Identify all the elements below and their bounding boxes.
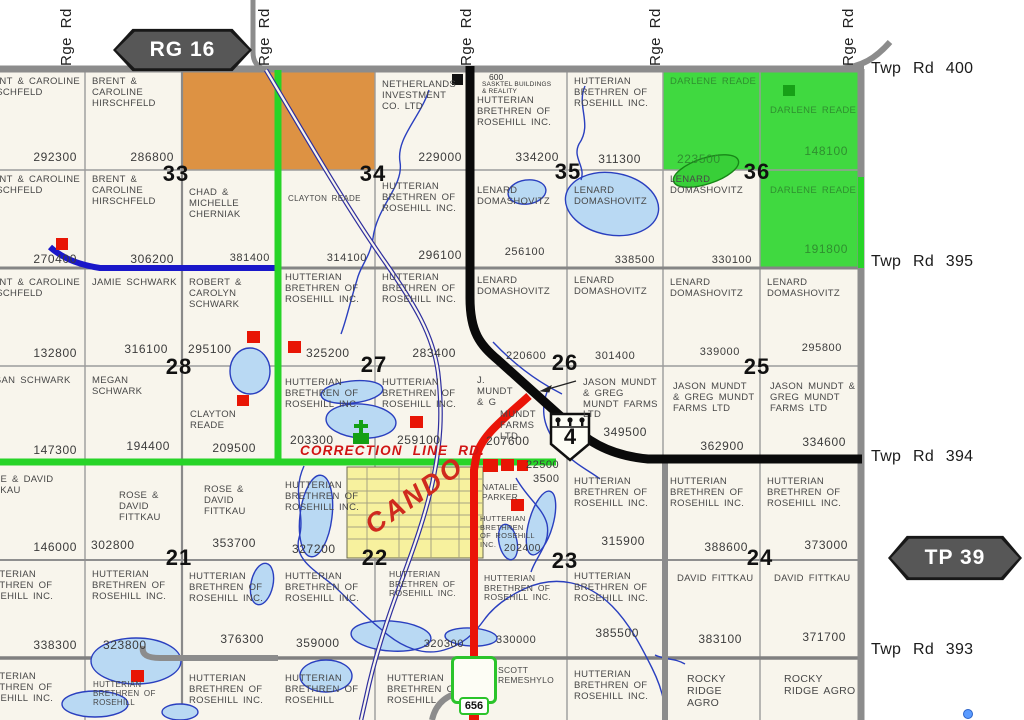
range-road-label: Rge Rd	[256, 2, 272, 66]
town-population-marker: 656	[451, 656, 497, 704]
highway-number: 4	[549, 424, 591, 450]
township-marker: TP 39	[888, 535, 1022, 581]
range-road-label: Rge Rd	[647, 2, 663, 66]
highway-4-shield: 4	[549, 408, 591, 462]
range-road-label: Rge Rd	[458, 2, 474, 66]
correction-line-road-label: CORRECTION LINE RD.	[300, 443, 570, 458]
town-name-label: CANDO	[359, 450, 470, 541]
township-marker-label: TP 39	[925, 546, 986, 570]
township-road-label: Twp Rd 400	[871, 60, 973, 78]
range-road-label: Rge Rd	[840, 2, 856, 66]
township-road-label: Twp Rd 394	[871, 448, 973, 466]
map-canvas[interactable]: BRENT & CAROLINE HIRSCHFELD292300BRENT &…	[0, 0, 1024, 720]
range-marker: RG 16	[113, 28, 252, 72]
township-road-label: Twp Rd 393	[871, 641, 973, 659]
population-value: 656	[459, 697, 489, 715]
township-road-label: Twp Rd 395	[871, 253, 973, 271]
range-road-label: Rge Rd	[58, 2, 74, 66]
range-marker-label: RG 16	[150, 38, 216, 62]
